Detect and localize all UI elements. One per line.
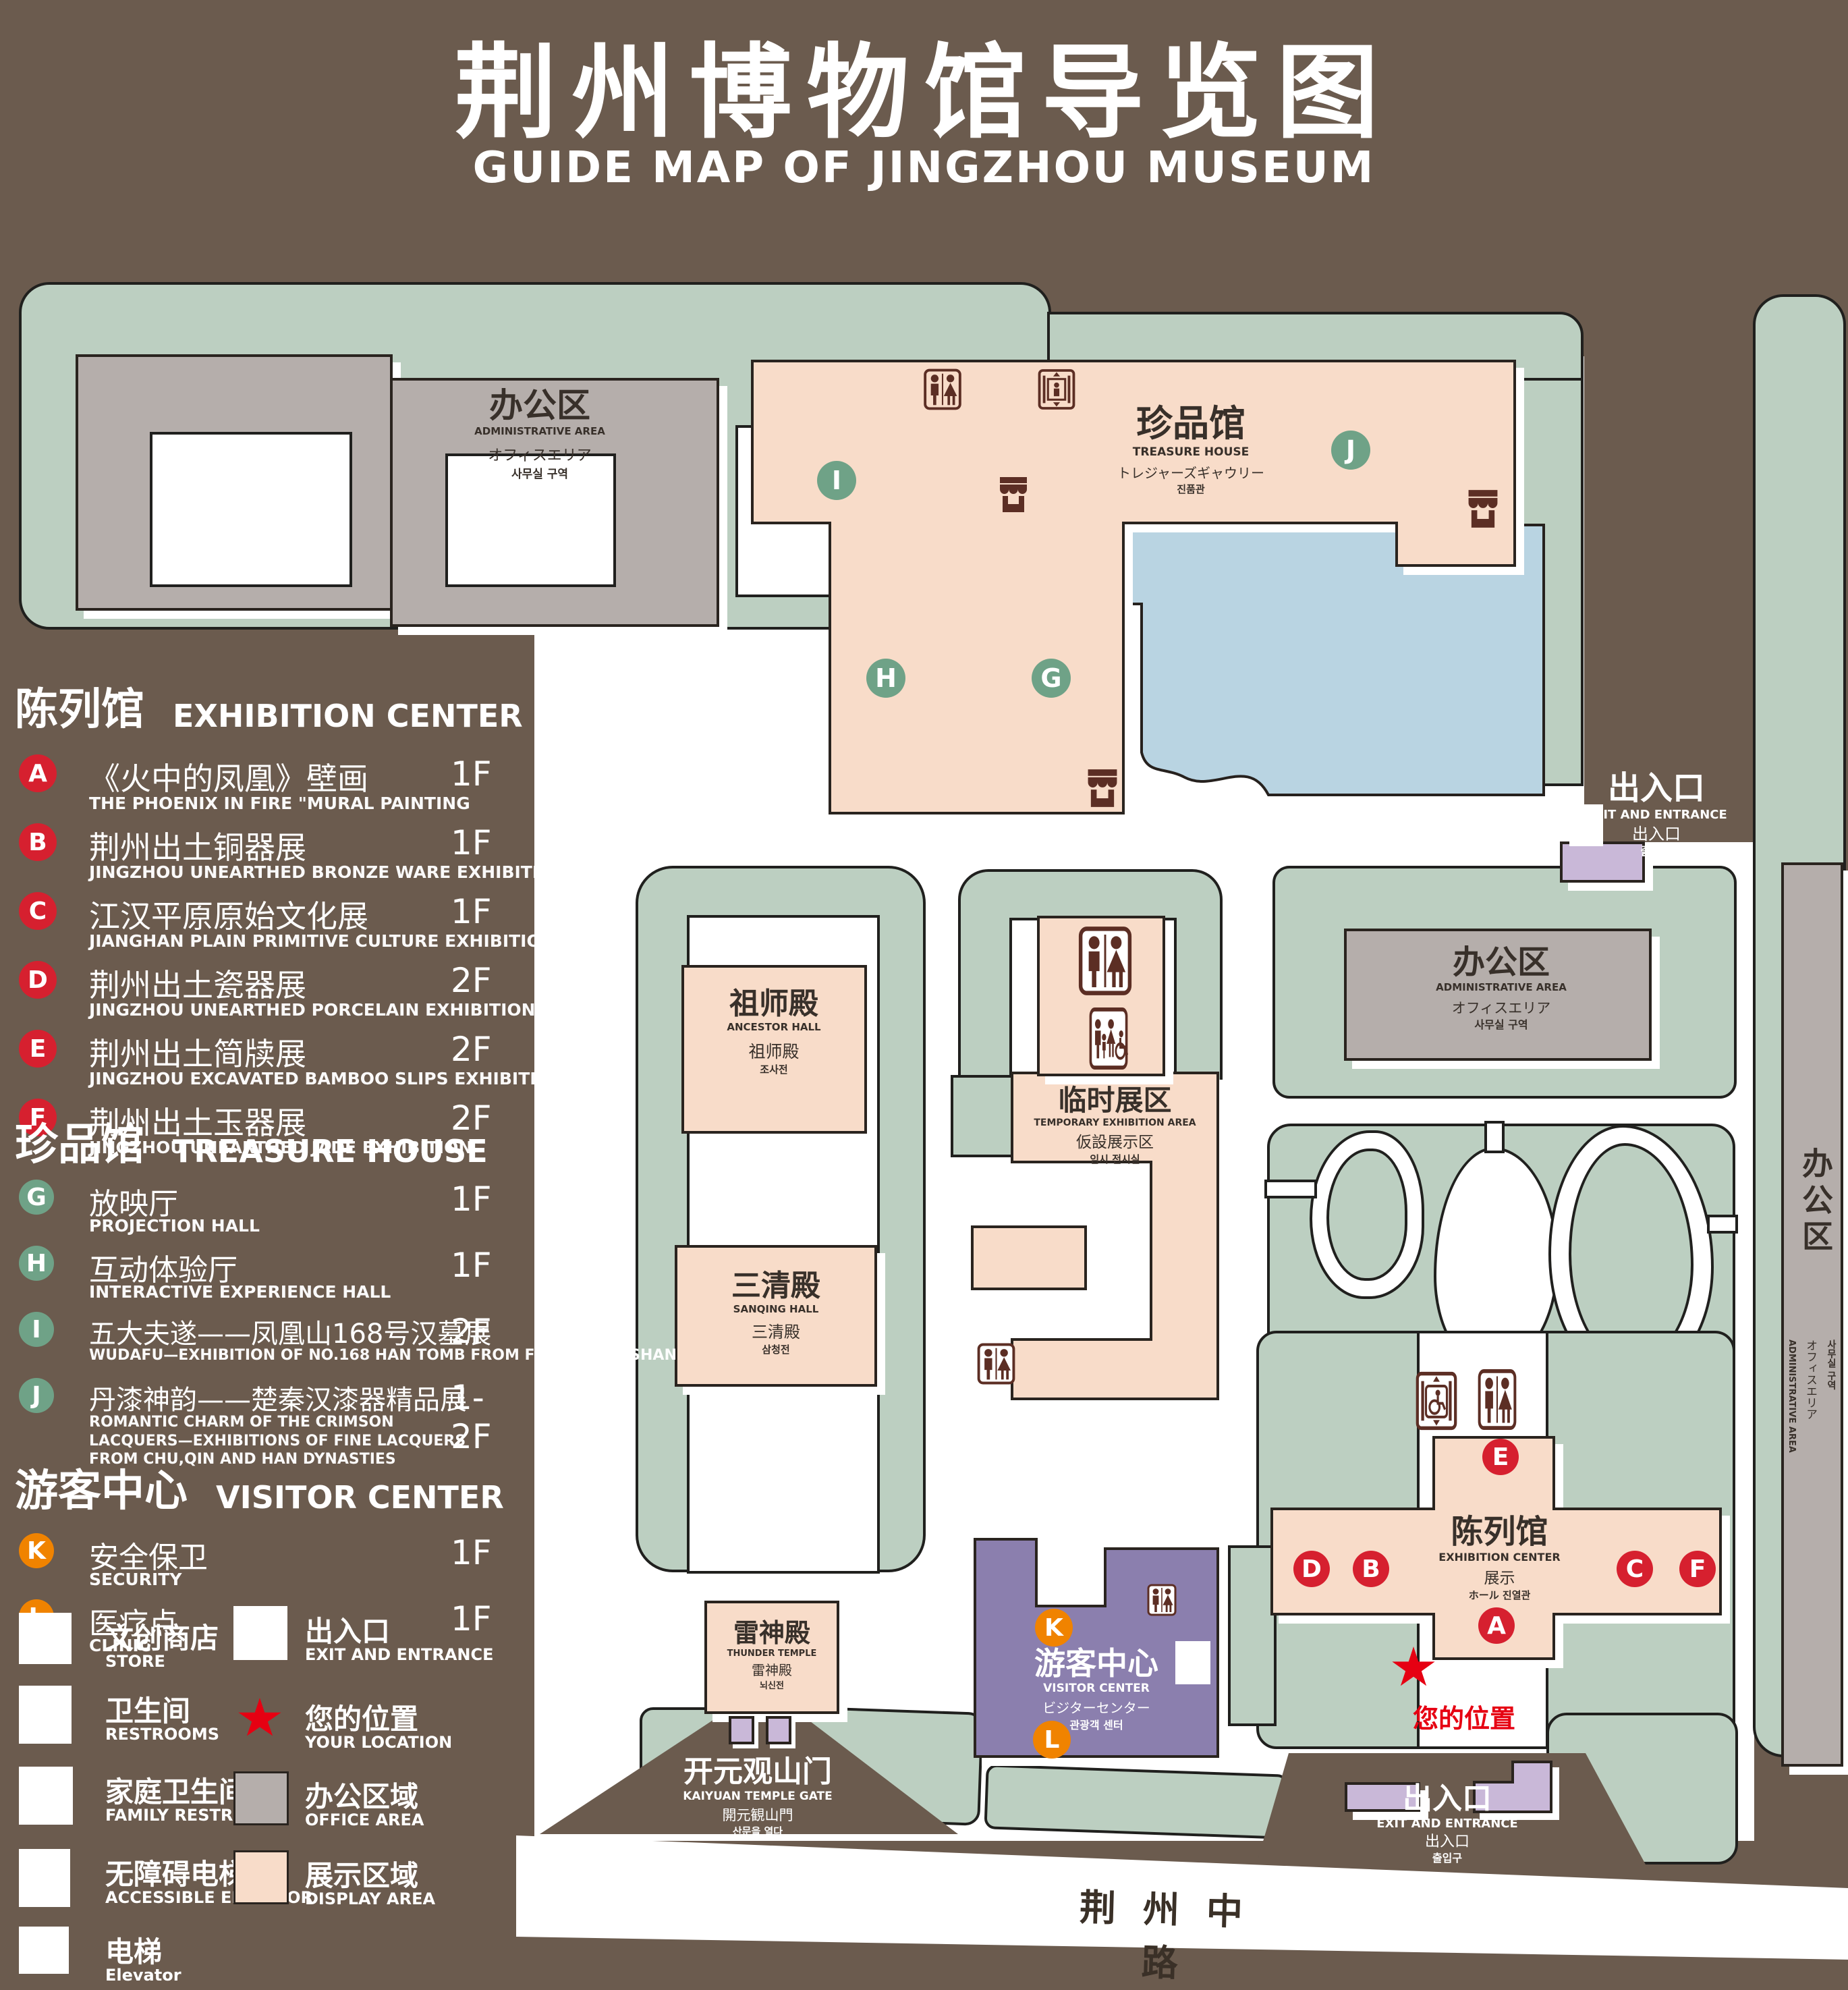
garden-path-east xyxy=(1707,1215,1738,1234)
restroom-icon xyxy=(1478,1369,1517,1431)
legend-symbol-your-location: 您的位置 YOUR LOCATION xyxy=(233,1694,490,1761)
restroom-icon xyxy=(1078,926,1132,996)
elevator-icon xyxy=(1038,368,1075,410)
marker-k: K xyxy=(1035,1609,1073,1647)
your-location-label: 您的位置 xyxy=(1376,1698,1552,1735)
legend-item-k: K 安全保卫 SECURITY 1F xyxy=(19,1533,518,1598)
label-admin-mid: 办公区 ADMINISTRATIVE AREA オフィスエリア 사무실 구역 xyxy=(1390,943,1613,1032)
page-title: 荆州博物馆导览图 xyxy=(0,9,1848,158)
elevator-icon xyxy=(19,1927,69,1974)
legend-symbol-display-area: 展示区域 DISPLAY AREA xyxy=(233,1850,490,1918)
store-icon xyxy=(1465,489,1501,529)
legend-item-j: J 丹漆神韵——楚秦汉漆器精品展 ROMANTIC CHARM OF THE C… xyxy=(19,1378,518,1459)
legend-section-treasure-house: 珍品馆 TREASURE HOUSE xyxy=(15,1110,488,1172)
legend-section-visitor-center: 游客中心 VISITOR CENTER xyxy=(15,1456,504,1518)
garden-island-west xyxy=(1326,1149,1407,1281)
marker-a: A xyxy=(1478,1607,1515,1644)
gate-pillar-east xyxy=(766,1716,791,1744)
legend-item-b: B 荆州出土铜器展 JINGZHOU UNEARTHED BRONZE WARE… xyxy=(19,823,518,891)
legend-item-h: H 互动体验厅 INTERACTIVE EXPERIENCE HALL 1F xyxy=(19,1246,518,1310)
guide-map-poster: 荆州博物馆导览图 GUIDE MAP OF JINGZHOU MUSEUM 荆州… xyxy=(0,0,1848,1976)
garden-path-north xyxy=(1484,1121,1505,1153)
label-sanqing-hall: 三清殿 SANQING HALL 三清殿 삼청전 xyxy=(681,1269,870,1356)
legend-item-g: G 放映厅 PROJECTION HALL 1F xyxy=(19,1180,518,1244)
display-area-swatch xyxy=(233,1850,289,1904)
legend-section-exhibition-center: 陈列馆 EXHIBITION CENTER xyxy=(15,675,523,737)
legend-symbol-store: 文创商店 STORE xyxy=(19,1613,242,1680)
marker-j: J xyxy=(1331,431,1370,470)
marker-c: C xyxy=(1617,1551,1653,1587)
page-subtitle: GUIDE MAP OF JINGZHOU MUSEUM xyxy=(0,143,1848,193)
marker-e: E xyxy=(1482,1439,1519,1475)
label-exhibition-center: 陈列馆 EXHIBITION CENTER 展示 ホール 진열관 xyxy=(1410,1513,1589,1601)
label-visitor-center: 游客中心 VISITOR CENTER ビジターセンター 관광객 센터 xyxy=(1012,1645,1181,1732)
label-kaiyuan-gate: 开元观山门 KAIYUAN TEMPLE GATE 開元観山門 산문을 열다 xyxy=(656,1754,859,1837)
building-store-kiosk xyxy=(971,1225,1087,1290)
store-icon xyxy=(19,1613,72,1664)
legend-item-d: D 荆州出土瓷器展 JINGZHOU UNEARTHED PORCELAIN E… xyxy=(19,961,518,1028)
legend-item-e: E 荆州出土简牍展 JINGZHOU EXCAVATED BAMBOO SLIP… xyxy=(19,1030,518,1097)
label-temporary-exhibition: 临时展区 TEMPORARY EXHIBITION AREA 仮設展示区 임시 … xyxy=(1015,1084,1214,1166)
marker-h: H xyxy=(866,659,905,698)
accessible-elevator-icon xyxy=(1416,1371,1457,1431)
store-icon xyxy=(1085,768,1120,808)
marker-b: B xyxy=(1353,1551,1389,1587)
restroom-icon xyxy=(19,1686,72,1744)
office-area-swatch xyxy=(233,1771,289,1825)
lawn-temp-west-patch xyxy=(951,1075,1018,1157)
restroom-icon xyxy=(1147,1580,1177,1620)
label-exit-south: 出入口 EXIT AND ENTRANCE 出入口 출입구 xyxy=(1363,1781,1532,1865)
lawn-visitor-east xyxy=(1228,1545,1277,1726)
marker-l: L xyxy=(1033,1721,1071,1759)
legend-symbol-exit: 出入口 EXIT AND ENTRANCE xyxy=(233,1606,490,1674)
gate-pillar-west xyxy=(729,1716,754,1744)
legend-item-c: C 江汉平原原始文化展 JIANGHAN PLAIN PRIMITIVE CUL… xyxy=(19,892,518,960)
legend-item-a: A 《火中的凤凰》壁画 THE PHOENIX IN FIRE "MURAL P… xyxy=(19,754,518,822)
restroom-icon xyxy=(977,1342,1015,1386)
exit-icon xyxy=(233,1606,287,1660)
admin-courtyard-1 xyxy=(150,432,352,587)
garden-path-west xyxy=(1264,1180,1317,1198)
label-thunder-temple: 雷神殿 THUNDER TEMPLE 雷神殿 뇌신전 xyxy=(711,1618,833,1691)
lawn-treasure-east xyxy=(1517,378,1584,786)
legend-symbol-elevator: 电梯 Elevator xyxy=(19,1927,242,1975)
road-name: 荆州中路 xyxy=(1051,1877,1297,1990)
accessible-elevator-icon xyxy=(19,1849,70,1907)
label-admin-east-strip-sub: ADMINISTRATIVE AREA オフィスエリア 사무실 구역 xyxy=(1787,1339,1838,1535)
label-treasure-house: 珍品馆 TREASURE HOUSE トレジャーズギャウリー 진품관 xyxy=(1080,402,1302,496)
store-icon xyxy=(997,475,1030,514)
legend-symbol-office-area: 办公区域 OFFICE AREA xyxy=(233,1771,490,1839)
legend-symbol-restrooms: 卫生间 RESTROOMS xyxy=(19,1686,242,1760)
lawn-south-center xyxy=(984,1764,1288,1840)
lawn-treasure-north xyxy=(1047,312,1584,394)
restroom-icon xyxy=(923,368,962,410)
family-restroom-icon xyxy=(19,1767,73,1825)
marker-f: F xyxy=(1679,1551,1716,1587)
legend-item-i: I 五大夫遂——凤凰山168号汉墓展 WUDAFU—EXHIBITION OF … xyxy=(19,1312,518,1377)
family-restroom-icon xyxy=(1089,1007,1128,1070)
location-star-icon xyxy=(237,1698,282,1740)
marker-i: I xyxy=(817,461,856,500)
marker-g: G xyxy=(1032,659,1071,698)
label-exit-north: 出入口 EXIT AND ENTRANCE 出入口 출입구 xyxy=(1572,769,1741,858)
label-ancestor-hall: 祖师殿 ANCESTOR HALL 祖师殿 조사전 xyxy=(683,987,865,1076)
label-admin-northwest: 办公区 ADMINISTRATIVE AREA オフィスエリア 사무실 구역 xyxy=(432,386,648,481)
label-admin-east-strip-zh: 办公区 xyxy=(1793,1147,1838,1329)
marker-d: D xyxy=(1293,1551,1330,1587)
